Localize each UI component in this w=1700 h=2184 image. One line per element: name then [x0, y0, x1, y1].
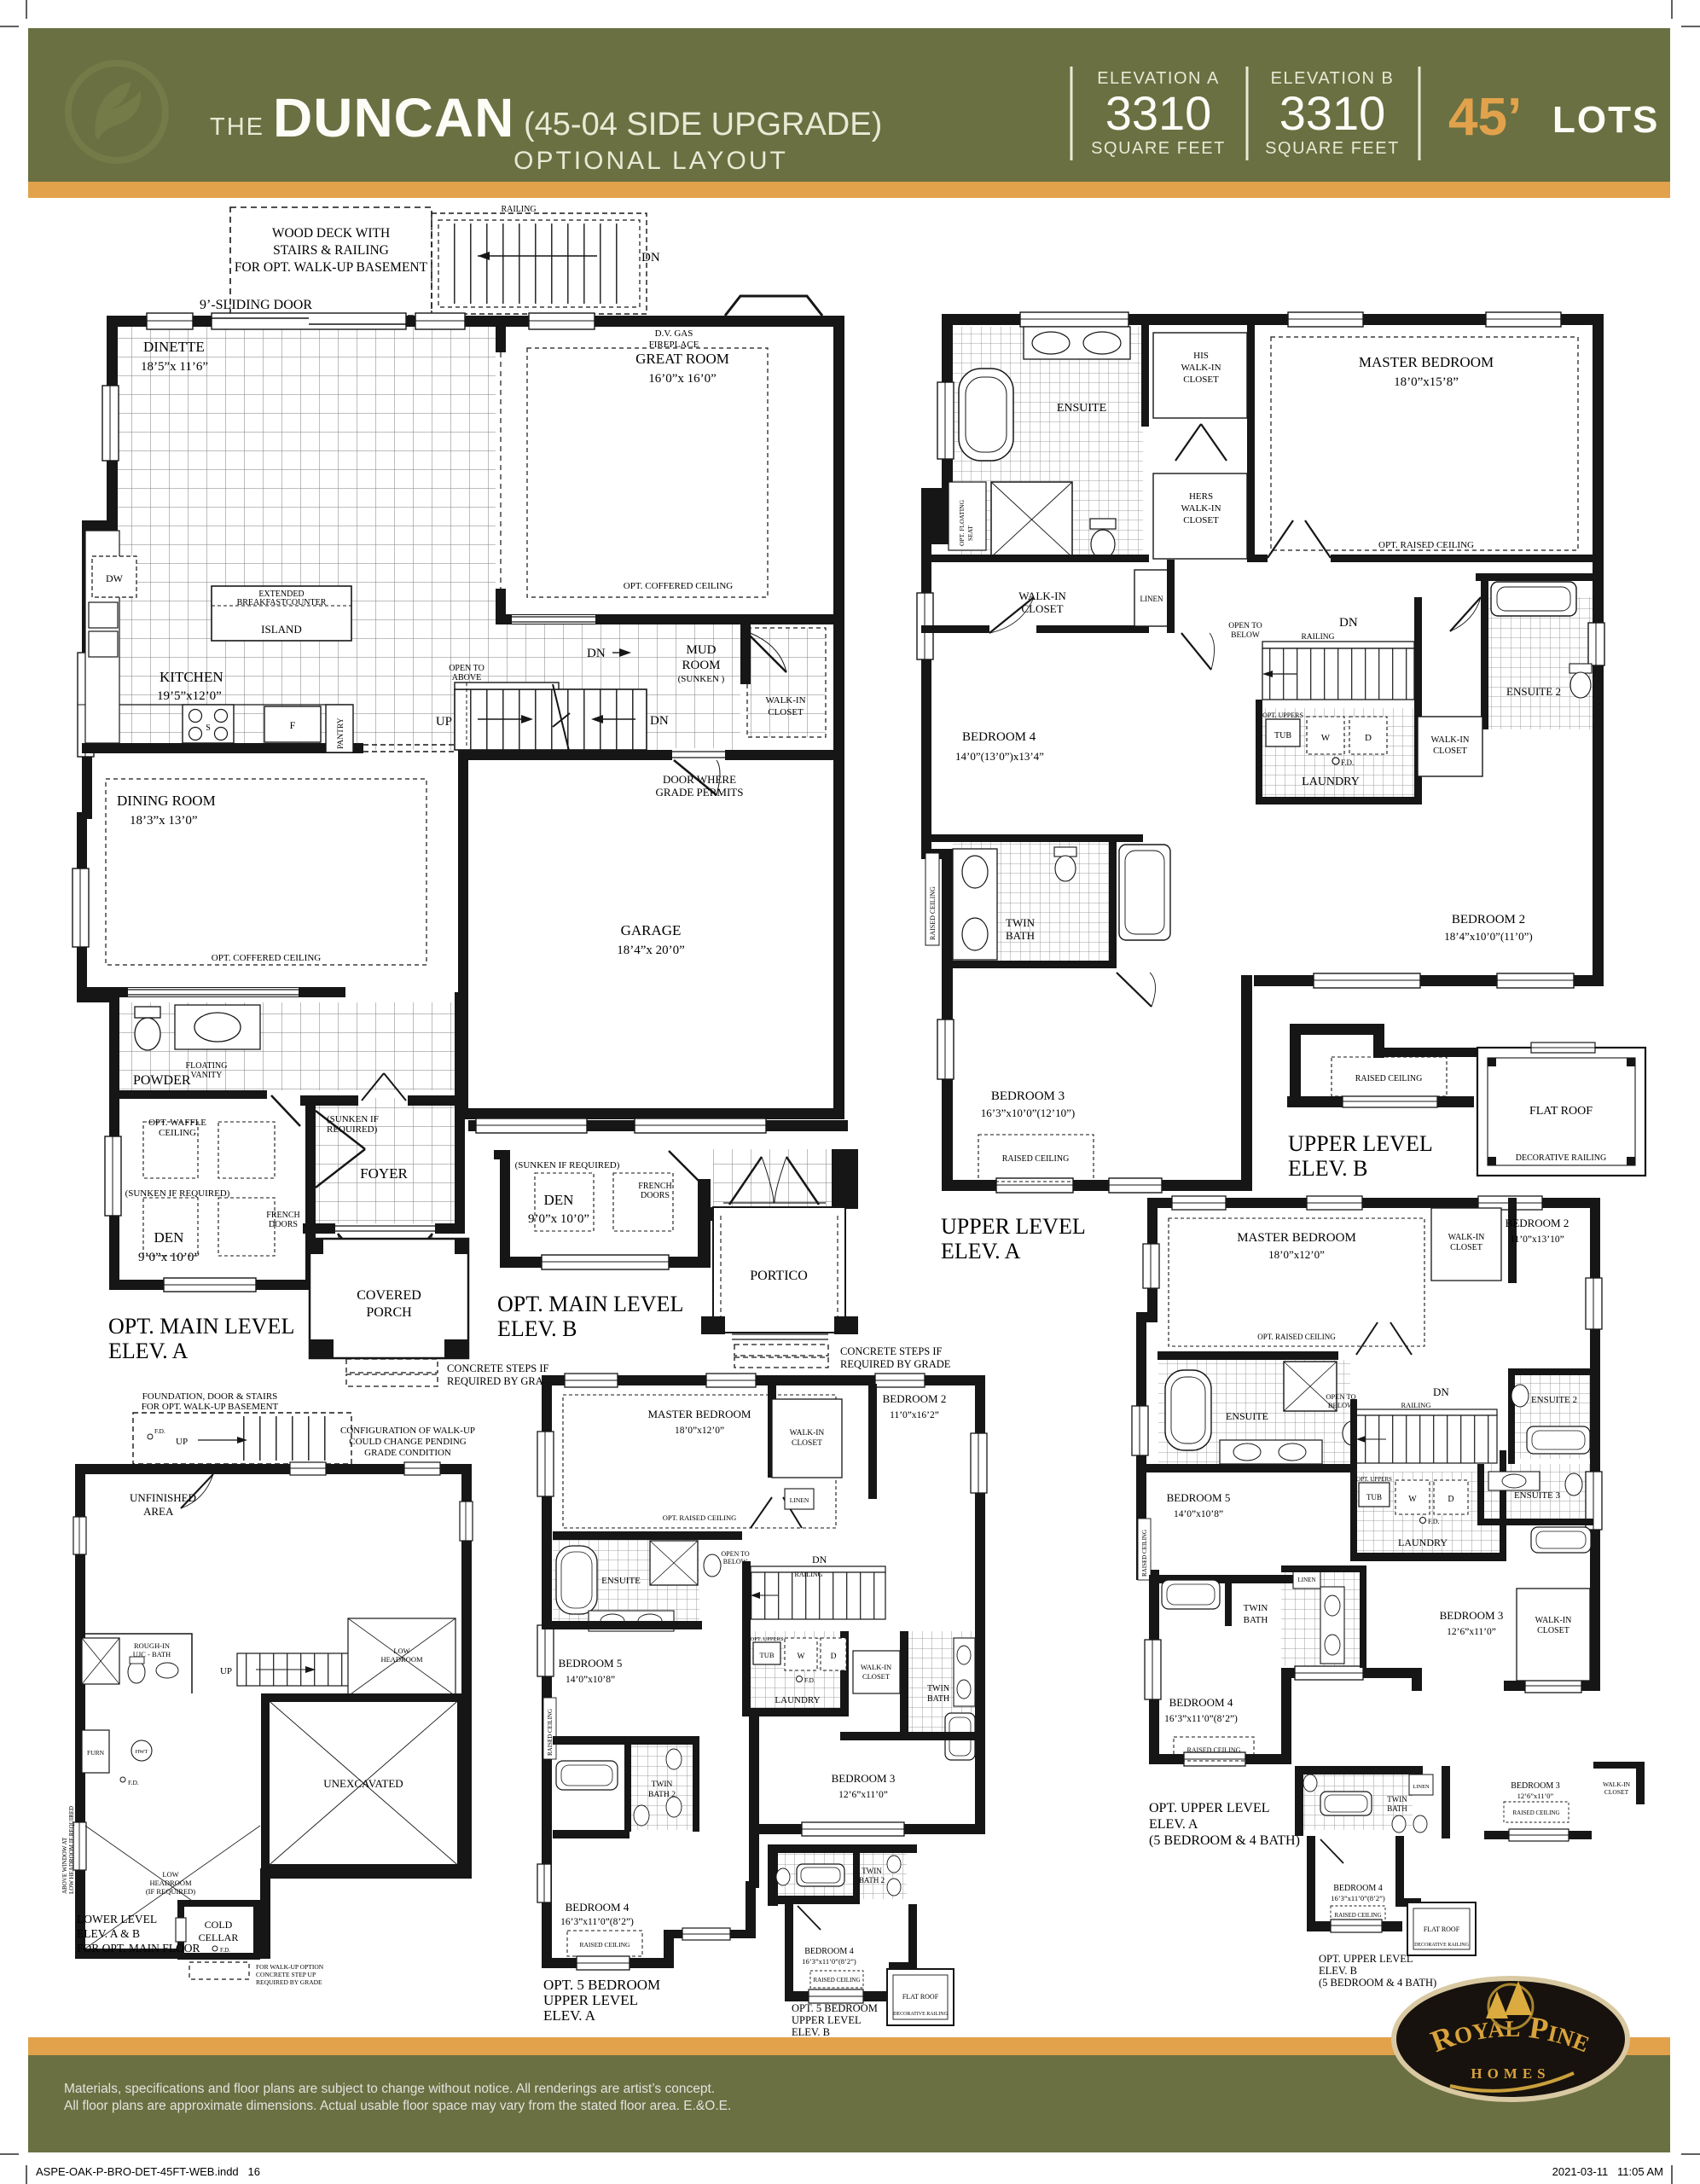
svg-text:LOW HEADROOM IF REQUIRED: LOW HEADROOM IF REQUIRED [68, 1806, 75, 1894]
svg-text:FLAT ROOF: FLAT ROOF [1424, 1926, 1460, 1933]
svg-text:CONFIGURATION OF WALK-UP: CONFIGURATION OF WALK-UP [340, 1426, 475, 1436]
svg-text:ABOVE WINDOW AT: ABOVE WINDOW AT [61, 1837, 68, 1894]
svg-text:3310: 3310 [1279, 86, 1386, 140]
svg-text:UP: UP [176, 1437, 188, 1447]
svg-text:BATH: BATH [1006, 929, 1035, 942]
svg-text:UPPER LEVEL: UPPER LEVEL [792, 2014, 862, 2026]
svg-text:DN: DN [1433, 1385, 1449, 1398]
svg-text:CELLAR: CELLAR [199, 1931, 239, 1943]
svg-text:BEDROOM 4: BEDROOM 4 [1333, 1884, 1383, 1893]
svg-text:OPT. UPPERS: OPT. UPPERS [1356, 1476, 1392, 1483]
svg-text:REQUIRED BY GRADE: REQUIRED BY GRADE [840, 1358, 951, 1370]
svg-text:OPT. 5 BEDROOM: OPT. 5 BEDROOM [543, 1977, 660, 1993]
svg-text:HERS: HERS [1189, 491, 1213, 502]
svg-text:(5 BEDROOM & 4 BATH): (5 BEDROOM & 4 BATH) [1319, 1977, 1436, 1989]
svg-text:ENSUITE: ENSUITE [601, 1576, 641, 1586]
svg-text:RAISED CEILING: RAISED CEILING [580, 1941, 631, 1949]
svg-text:BEDROOM 3: BEDROOM 3 [1440, 1609, 1504, 1622]
svg-text:DECORATIVE RAILING: DECORATIVE RAILING [1516, 1153, 1606, 1163]
svg-text:RAILING: RAILING [795, 1571, 823, 1578]
svg-text:FRENCH: FRENCH [638, 1182, 671, 1191]
svg-text:ROOM: ROOM [682, 659, 720, 672]
svg-text:CONCRETE STEP UP: CONCRETE STEP UP [256, 1971, 316, 1978]
svg-text:CLOSET: CLOSET [1183, 515, 1219, 526]
svg-text:18’0”x12’0”: 18’0”x12’0” [1268, 1248, 1325, 1261]
svg-text:UNEXCAVATED: UNEXCAVATED [323, 1777, 403, 1790]
svg-text:9’0”x 10’0”: 9’0”x 10’0” [138, 1251, 200, 1264]
svg-text:ELEV. A: ELEV. A [1149, 1817, 1198, 1832]
svg-text:POWDER: POWDER [133, 1073, 191, 1088]
svg-text:OPT. 5 BEDROOM: OPT. 5 BEDROOM [792, 2002, 878, 2014]
svg-text:16’3”x11’0”(8’2”): 16’3”x11’0”(8’2”) [802, 1957, 856, 1966]
svg-text:ASPE-OAK-P-BRO-DET-45FT-WEB.in: ASPE-OAK-P-BRO-DET-45FT-WEB.indd 16 [36, 2165, 260, 2178]
svg-text:GRADE PERMITS: GRADE PERMITS [656, 786, 744, 799]
svg-text:RAISED CEILING: RAISED CEILING [1141, 1530, 1148, 1577]
svg-text:UPPER LEVEL: UPPER LEVEL [543, 1992, 638, 2008]
svg-text:LOTS: LOTS [1552, 99, 1659, 141]
svg-text:(SUNKEN IF REQUIRED): (SUNKEN IF REQUIRED) [515, 1160, 620, 1170]
svg-text:LINEN: LINEN [1413, 1784, 1430, 1790]
svg-text:BEDROOM 4: BEDROOM 4 [804, 1947, 854, 1956]
svg-text:(IF REQUIRED): (IF REQUIRED) [146, 1887, 195, 1896]
svg-text:OPT. UPPER LEVEL: OPT. UPPER LEVEL [1149, 1801, 1269, 1815]
svg-text:LAUNDRY: LAUNDRY [1302, 775, 1360, 788]
svg-text:OPT. UPPER LEVEL: OPT. UPPER LEVEL [1319, 1953, 1413, 1965]
svg-text:KITCHEN: KITCHEN [160, 669, 223, 685]
svg-text:BREAKFASTCOUNTER: BREAKFASTCOUNTER [237, 598, 327, 607]
svg-text:UNFINISHED: UNFINISHED [130, 1491, 196, 1504]
svg-text:TUB: TUB [760, 1651, 775, 1659]
svg-text:RAISED CEILING: RAISED CEILING [1187, 1746, 1241, 1754]
svg-text:ELEV. A: ELEV. A [108, 1339, 189, 1363]
svg-text:OPT. RAISED CEILING: OPT. RAISED CEILING [1257, 1333, 1336, 1341]
svg-text:FURN: FURN [87, 1749, 105, 1757]
svg-text:12’6”x11’0”: 12’6”x11’0” [1447, 1627, 1496, 1637]
svg-text:MASTER BEDROOM: MASTER BEDROOM [1359, 354, 1494, 370]
svg-text:TUB: TUB [1366, 1493, 1382, 1501]
svg-text:DN: DN [812, 1554, 827, 1565]
svg-text:CLOSET: CLOSET [768, 707, 804, 717]
svg-text:STAIRS & RAILING: STAIRS & RAILING [273, 243, 389, 258]
svg-text:3310: 3310 [1105, 86, 1212, 140]
svg-text:LAUNDRY: LAUNDRY [1398, 1536, 1448, 1548]
svg-text:S: S [206, 723, 211, 733]
svg-text:Materials, specifications and: Materials, specifications and floor plan… [64, 2082, 715, 2096]
svg-text:D: D [1365, 733, 1372, 743]
svg-text:BEDROOM 3: BEDROOM 3 [991, 1089, 1065, 1103]
svg-text:DN: DN [587, 647, 606, 660]
svg-text:MUD: MUD [686, 643, 716, 657]
svg-text:BEDROOM 4: BEDROOM 4 [962, 730, 1036, 744]
svg-text:WALK-IN: WALK-IN [1018, 590, 1066, 602]
svg-text:(SUNKEN IF REQUIRED): (SUNKEN IF REQUIRED) [125, 1188, 230, 1199]
svg-text:OPT. MAIN LEVEL: OPT. MAIN LEVEL [108, 1314, 294, 1339]
svg-text:CEILING: CEILING [159, 1128, 196, 1138]
svg-text:THE: THE [210, 113, 264, 141]
svg-text:RAILING: RAILING [1301, 633, 1334, 642]
svg-text:(5 BEDROOM & 4 BATH): (5 BEDROOM & 4 BATH) [1149, 1833, 1300, 1848]
svg-text:FRENCH: FRENCH [266, 1211, 299, 1220]
svg-text:ENSUITE 2: ENSUITE 2 [1531, 1395, 1577, 1405]
svg-text:LINEN: LINEN [790, 1496, 809, 1504]
svg-text:CLOSET: CLOSET [1433, 746, 1467, 756]
svg-text:FLOATING: FLOATING [186, 1061, 228, 1071]
svg-text:FOR OPT. MAIN FLOOR: FOR OPT. MAIN FLOOR [77, 1942, 200, 1955]
svg-text:CONCRETE STEPS IF: CONCRETE STEPS IF [840, 1345, 943, 1357]
svg-text:VANITY: VANITY [190, 1071, 222, 1080]
svg-text:SQUARE FEET: SQUARE FEET [1091, 139, 1226, 158]
svg-text:FOR WALK-UP OPTION: FOR WALK-UP OPTION [256, 1963, 324, 1971]
svg-text:ENSUITE: ENSUITE [1057, 402, 1106, 415]
svg-text:F.D.: F.D. [128, 1779, 139, 1786]
svg-text:OPT. WAFFLE: OPT. WAFFLE [148, 1118, 206, 1128]
svg-text:OPT. COFFERED CEILING: OPT. COFFERED CEILING [624, 581, 733, 591]
svg-text:TWIN: TWIN [1387, 1795, 1407, 1804]
svg-text:HOMES: HOMES [1471, 2065, 1550, 2082]
svg-text:45’: 45’ [1448, 88, 1522, 147]
svg-text:SEAT: SEAT [966, 526, 974, 541]
svg-text:WALK-IN: WALK-IN [1181, 503, 1221, 514]
svg-text:RAISED CEILING: RAISED CEILING [813, 1977, 860, 1984]
svg-text:ELEV. A: ELEV. A [941, 1239, 1021, 1263]
svg-text:MASTER BEDROOM: MASTER BEDROOM [648, 1408, 751, 1420]
svg-text:BATH: BATH [1387, 1804, 1407, 1813]
svg-text:DINING ROOM: DINING ROOM [117, 793, 216, 809]
svg-text:CLOSET: CLOSET [862, 1672, 891, 1681]
svg-text:SQUARE FEET: SQUARE FEET [1265, 139, 1400, 158]
svg-text:12’6”x11’0”: 12’6”x11’0” [1517, 1792, 1554, 1800]
svg-text:DECORATIVE RAILING: DECORATIVE RAILING [1414, 1943, 1469, 1948]
svg-text:UP: UP [436, 715, 452, 729]
svg-text:ABOVE: ABOVE [452, 673, 481, 682]
svg-text:(45-04 SIDE UPGRADE): (45-04 SIDE UPGRADE) [524, 107, 882, 142]
svg-text:18’4”x 20’0”: 18’4”x 20’0” [617, 944, 685, 957]
svg-text:OPEN TO: OPEN TO [449, 664, 484, 673]
svg-text:18’3”x 13’0”: 18’3”x 13’0” [130, 814, 198, 828]
svg-text:RAISED CEILING: RAISED CEILING [1002, 1154, 1070, 1164]
svg-text:UPPER LEVEL: UPPER LEVEL [941, 1214, 1086, 1239]
svg-text:ROUGH-IN: ROUGH-IN [134, 1641, 170, 1650]
svg-text:12’6”x11’0”: 12’6”x11’0” [838, 1790, 888, 1800]
svg-text:16’3”x11’0”(8’2”): 16’3”x11’0”(8’2”) [1331, 1894, 1385, 1902]
svg-text:RAISED CEILING: RAISED CEILING [1512, 1809, 1559, 1816]
svg-text:TWIN: TWIN [1006, 916, 1036, 929]
svg-text:ENSUITE: ENSUITE [1226, 1410, 1268, 1422]
svg-text:D: D [1448, 1495, 1453, 1504]
svg-text:ELEV. A: ELEV. A [543, 2007, 596, 2024]
svg-text:RAILING: RAILING [1401, 1401, 1431, 1409]
svg-text:UPPER LEVEL: UPPER LEVEL [1288, 1131, 1433, 1156]
svg-text:2021-03-11 11:05 AM: 2021-03-11 11:05 AM [1552, 2165, 1663, 2178]
svg-text:DEN: DEN [154, 1229, 184, 1246]
svg-text:BEDROOM 5: BEDROOM 5 [559, 1657, 623, 1670]
svg-text:WALK-IN: WALK-IN [1535, 1616, 1572, 1625]
svg-text:BELOW: BELOW [1231, 631, 1260, 640]
svg-text:WALK-IN: WALK-IN [765, 695, 805, 706]
svg-text:DECORATIVE RAILING: DECORATIVE RAILING [893, 2012, 948, 2017]
svg-text:19’5”x12’0”: 19’5”x12’0” [157, 689, 222, 703]
svg-text:RAISED CEILING: RAISED CEILING [929, 886, 937, 940]
svg-text:PORTICO: PORTICO [750, 1269, 808, 1283]
svg-text:WALK-IN: WALK-IN [1603, 1780, 1631, 1788]
svg-text:WALK-IN: WALK-IN [1181, 363, 1221, 373]
svg-text:TWIN: TWIN [1244, 1603, 1268, 1613]
svg-text:16’3”x10’0”(12’10”): 16’3”x10’0”(12’10”) [981, 1107, 1075, 1119]
svg-text:BEDROOM 2: BEDROOM 2 [1506, 1217, 1569, 1229]
svg-text:ISLAND: ISLAND [261, 623, 302, 636]
svg-text:BATH 2: BATH 2 [859, 1876, 885, 1885]
svg-text:16’3”x11’0”(8’2”): 16’3”x11’0”(8’2”) [1164, 1714, 1238, 1724]
svg-text:FLAT ROOF: FLAT ROOF [1529, 1105, 1593, 1118]
svg-text:DINETTE: DINETTE [143, 339, 205, 355]
svg-text:HWT: HWT [136, 1749, 148, 1755]
svg-text:ENSUITE 3: ENSUITE 3 [1514, 1490, 1561, 1501]
svg-text:F: F [290, 719, 296, 731]
svg-text:DEN: DEN [544, 1192, 574, 1208]
svg-text:FOUNDATION, DOOR & STAIRS: FOUNDATION, DOOR & STAIRS [142, 1391, 278, 1402]
svg-text:WALK-IN: WALK-IN [790, 1429, 825, 1438]
svg-text:18’0”x12’0”: 18’0”x12’0” [675, 1426, 724, 1436]
svg-text:11’0”x13’10”: 11’0”x13’10” [1510, 1234, 1564, 1245]
svg-text:WALK-IN: WALK-IN [1431, 735, 1470, 745]
svg-text:BEDROOM 3: BEDROOM 3 [832, 1772, 896, 1785]
svg-text:OPT. MAIN LEVEL: OPT. MAIN LEVEL [497, 1292, 683, 1316]
svg-text:14’0”x10’8”: 14’0”x10’8” [1174, 1509, 1223, 1519]
svg-text:14’0”(13’0”)x13’4”: 14’0”(13’0”)x13’4” [955, 750, 1044, 763]
svg-text:CLOSET: CLOSET [792, 1439, 822, 1448]
svg-text:BEDROOM 2: BEDROOM 2 [883, 1392, 947, 1405]
svg-text:F.D.: F.D. [154, 1427, 165, 1435]
svg-text:DN: DN [1339, 616, 1358, 630]
svg-text:18’5”x 11’6”: 18’5”x 11’6” [141, 360, 208, 374]
svg-text:D.V. GAS: D.V. GAS [655, 328, 693, 339]
svg-text:ELEVATION B: ELEVATION B [1271, 69, 1395, 88]
svg-text:11’0”x16’2”: 11’0”x16’2” [890, 1410, 939, 1420]
svg-text:CLOSET: CLOSET [1537, 1626, 1569, 1635]
svg-text:WALK-IN: WALK-IN [861, 1663, 891, 1671]
svg-text:PANTRY: PANTRY [337, 717, 345, 749]
svg-text:LINEN: LINEN [1140, 595, 1163, 603]
svg-text:F.D.: F.D. [220, 1947, 230, 1954]
svg-text:COVERED: COVERED [357, 1288, 421, 1303]
svg-text:ELEV. B: ELEV. B [497, 1316, 577, 1341]
svg-text:F.D.: F.D. [804, 1676, 815, 1684]
svg-text:W: W [798, 1653, 805, 1661]
svg-text:FOYER: FOYER [360, 1165, 408, 1182]
svg-text:GRADE CONDITION: GRADE CONDITION [364, 1448, 451, 1458]
svg-text:REQUIRED): REQUIRED) [327, 1124, 378, 1135]
svg-text:BATH: BATH [927, 1694, 949, 1704]
svg-text:ELEV. B: ELEV. B [1288, 1156, 1367, 1181]
svg-text:CLOSET: CLOSET [1604, 1788, 1629, 1796]
svg-text:DUNCAN: DUNCAN [273, 87, 514, 148]
svg-text:BATH: BATH [1244, 1615, 1268, 1625]
svg-text:OPT. RAISED CEILING: OPT. RAISED CEILING [663, 1513, 737, 1522]
svg-text:OPT. RAISED CEILING: OPT. RAISED CEILING [1378, 540, 1474, 550]
svg-text:WOOD DECK WITH: WOOD DECK WITH [272, 226, 390, 241]
svg-text:CLOSET: CLOSET [1450, 1243, 1482, 1252]
svg-text:UP: UP [220, 1666, 232, 1676]
svg-text:AREA: AREA [143, 1505, 174, 1518]
svg-text:LINEN: LINEN [1298, 1577, 1316, 1583]
svg-text:HEADROOM: HEADROOM [149, 1879, 192, 1887]
svg-text:ELEVATION A: ELEVATION A [1097, 69, 1220, 88]
svg-text:FOR OPT. WALK-UP BASEMENT: FOR OPT. WALK-UP BASEMENT [142, 1402, 279, 1412]
svg-text:9’-SLIDING DOOR: 9’-SLIDING DOOR [200, 298, 312, 312]
svg-text:DOORS: DOORS [269, 1220, 298, 1229]
svg-text:TUB: TUB [1274, 731, 1291, 741]
svg-text:MASTER BEDROOM: MASTER BEDROOM [1237, 1231, 1356, 1245]
svg-text:LOW: LOW [162, 1870, 178, 1879]
svg-text:CLOSET: CLOSET [1183, 375, 1219, 385]
svg-text:14’0”x10’8”: 14’0”x10’8” [566, 1675, 615, 1685]
svg-text:LOWER LEVEL: LOWER LEVEL [77, 1913, 157, 1926]
svg-text:D: D [831, 1653, 837, 1661]
svg-text:RAISED CEILING: RAISED CEILING [1334, 1912, 1381, 1919]
svg-text:BEDROOM 4: BEDROOM 4 [1169, 1696, 1233, 1709]
svg-text:ENSUITE 2: ENSUITE 2 [1506, 685, 1561, 698]
svg-text:OPEN TO: OPEN TO [721, 1550, 749, 1558]
svg-text:GARAGE: GARAGE [621, 922, 682, 938]
svg-text:DOORS: DOORS [641, 1191, 670, 1200]
svg-text:REQUIRED BY GRADE: REQUIRED BY GRADE [256, 1978, 322, 1986]
svg-text:All floor plans are approximat: All floor plans are approximate dimensio… [64, 2099, 731, 2113]
svg-text:16’0”x 16’0”: 16’0”x 16’0” [648, 372, 717, 386]
svg-text:OPT. UPPERS: OPT. UPPERS [751, 1636, 784, 1642]
svg-text:RAISED CEILING: RAISED CEILING [547, 1709, 554, 1756]
svg-text:CONCRETE STEPS IF: CONCRETE STEPS IF [447, 1362, 549, 1374]
svg-text:F.D.: F.D. [1428, 1518, 1440, 1525]
svg-text:DOOR WHERE: DOOR WHERE [663, 773, 736, 786]
svg-text:BEDROOM 3: BEDROOM 3 [1511, 1781, 1560, 1791]
svg-text:DN: DN [650, 714, 669, 728]
svg-text:9’0”x 10’0”: 9’0”x 10’0” [528, 1212, 589, 1226]
svg-text:GREAT ROOM: GREAT ROOM [635, 351, 729, 367]
svg-text:F.D.: F.D. [1341, 758, 1354, 767]
svg-text:ELEV. B: ELEV. B [792, 2026, 830, 2038]
svg-text:WALK-IN: WALK-IN [1448, 1233, 1485, 1242]
svg-text:FLAT ROOF: FLAT ROOF [902, 1993, 939, 2001]
svg-text:OPTIONAL LAYOUT: OPTIONAL LAYOUT [513, 147, 788, 175]
svg-text:BEDROOM 2: BEDROOM 2 [1452, 913, 1525, 926]
svg-text:(SUNKEN IF: (SUNKEN IF [327, 1114, 379, 1124]
svg-text:HIS: HIS [1193, 351, 1209, 361]
svg-text:OPT. FLOATING: OPT. FLOATING [958, 499, 966, 546]
svg-text:(SUNKEN ): (SUNKEN ) [678, 674, 725, 684]
svg-text:BEDROOM 4: BEDROOM 4 [566, 1901, 630, 1914]
svg-text:RAISED CEILING: RAISED CEILING [1355, 1074, 1423, 1083]
svg-text:RAILING: RAILING [501, 205, 536, 214]
svg-text:OPEN TO: OPEN TO [1228, 622, 1262, 630]
svg-text:BELOW: BELOW [1328, 1401, 1354, 1409]
svg-text:W: W [1408, 1495, 1417, 1504]
svg-text:COULD CHANGE PENDING: COULD CHANGE PENDING [349, 1437, 467, 1447]
svg-text:W: W [1321, 733, 1331, 743]
svg-text:TWIN: TWIN [652, 1780, 673, 1789]
svg-text:18’0”x15’8”: 18’0”x15’8” [1394, 375, 1459, 389]
svg-text:LAUNDRY: LAUNDRY [775, 1695, 820, 1705]
svg-text:ELEV. B: ELEV. B [1319, 1965, 1357, 1977]
svg-text:16’3”x11’0”(8’2”): 16’3”x11’0”(8’2”) [560, 1917, 634, 1927]
svg-text:ELEV. A & B: ELEV. A & B [77, 1927, 140, 1940]
svg-text:REQUIRED BY GRADE: REQUIRED BY GRADE [447, 1375, 558, 1387]
svg-text:DW: DW [106, 572, 124, 584]
svg-text:OPT. UPPERS: OPT. UPPERS [1262, 712, 1303, 719]
svg-text:TWIN: TWIN [862, 1867, 882, 1875]
svg-text:PORCH: PORCH [366, 1305, 412, 1320]
svg-text:HEADROOM: HEADROOM [380, 1655, 423, 1664]
svg-text:18’4”x10’0”(11’0”): 18’4”x10’0”(11’0”) [1444, 930, 1532, 943]
svg-text:OPT. COFFERED CEILING: OPT. COFFERED CEILING [212, 953, 321, 963]
svg-text:UJC - BATH: UJC - BATH [133, 1650, 171, 1658]
svg-text:FOR OPT. WALK-UP BASEMENT: FOR OPT. WALK-UP BASEMENT [235, 260, 428, 275]
svg-text:COLD: COLD [205, 1919, 233, 1931]
svg-text:BEDROOM 5: BEDROOM 5 [1167, 1491, 1231, 1504]
svg-text:DN: DN [641, 251, 660, 264]
svg-text:LOW: LOW [393, 1647, 409, 1655]
svg-text:TWIN: TWIN [927, 1684, 949, 1693]
